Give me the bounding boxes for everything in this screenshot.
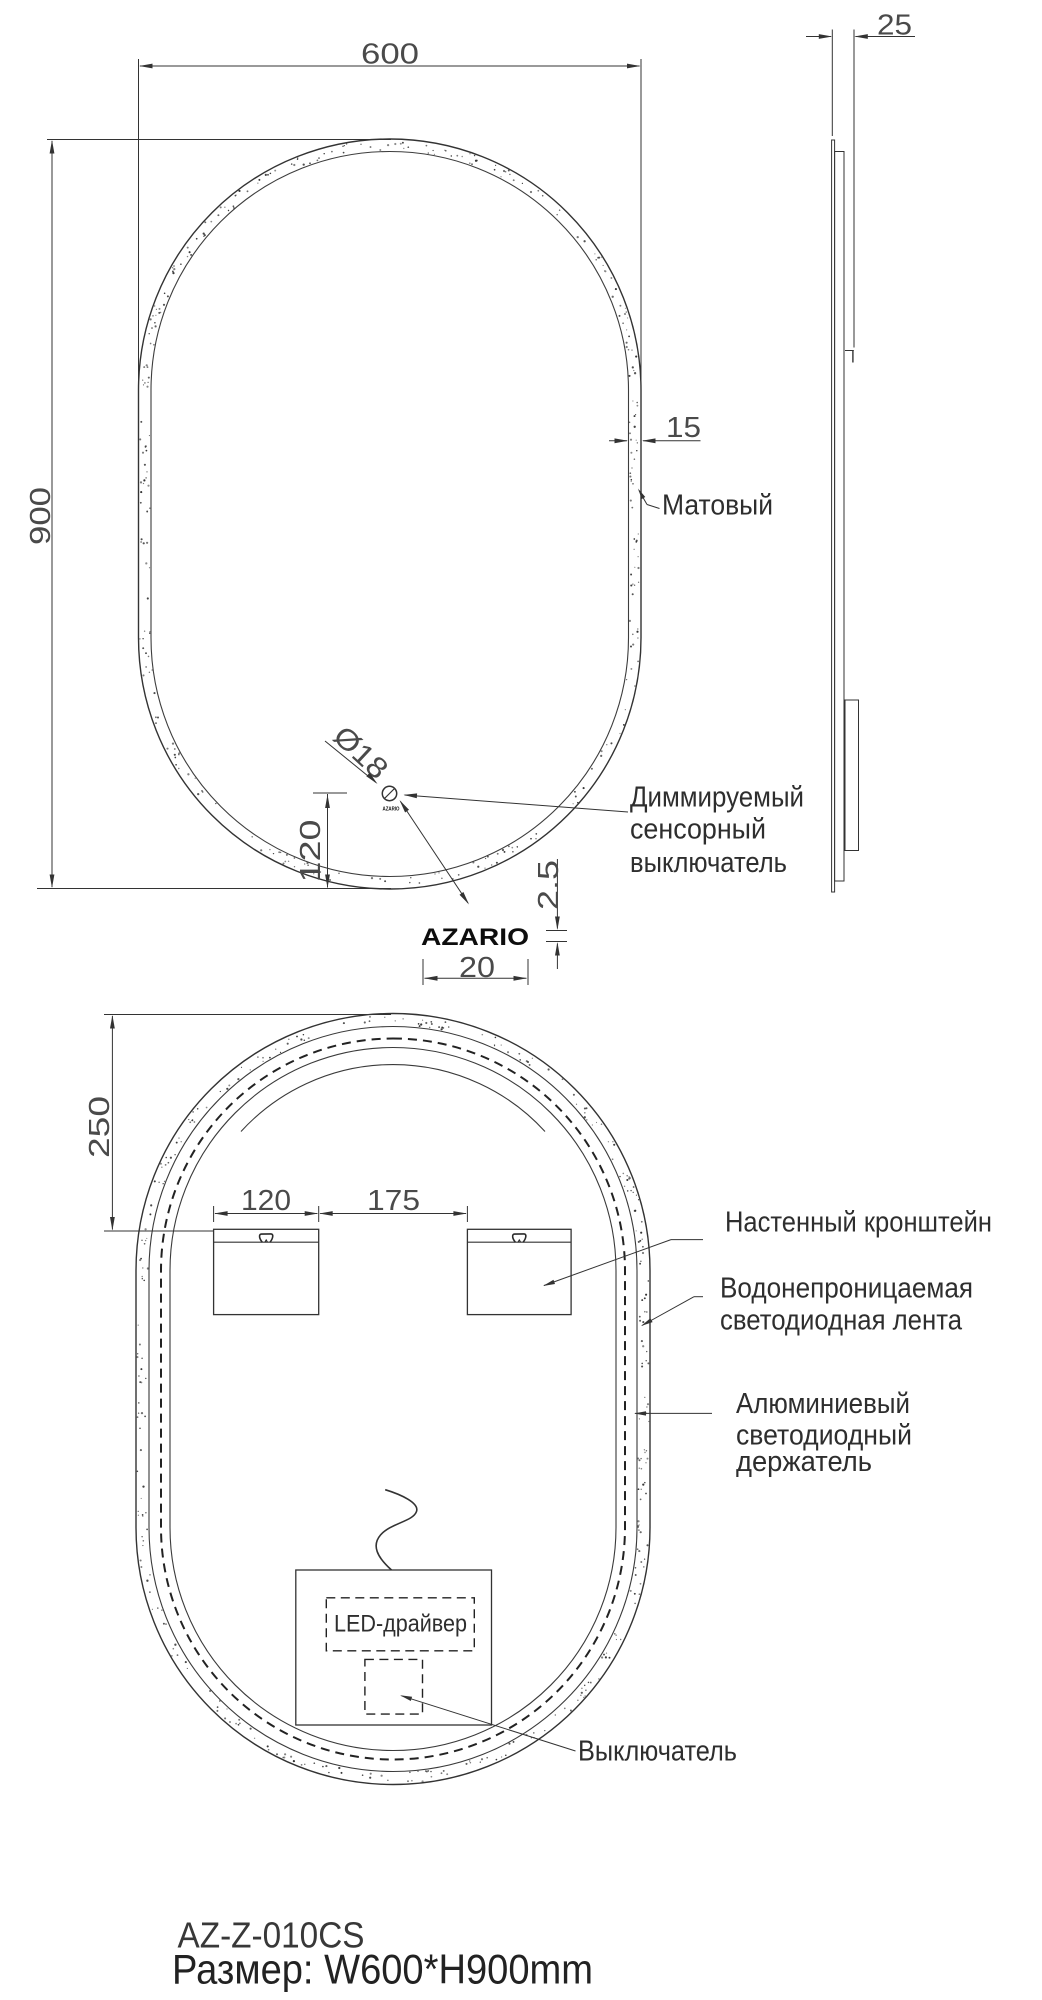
svg-text:2.5: 2.5 — [533, 860, 565, 910]
svg-text:20: 20 — [459, 952, 495, 984]
svg-text:15: 15 — [666, 412, 701, 444]
svg-text:25: 25 — [877, 10, 912, 42]
svg-text:175: 175 — [367, 1185, 420, 1217]
svg-text:Диммируемый: Диммируемый — [630, 782, 804, 814]
svg-text:Размер: W600*H900mm: Размер: W600*H900mm — [172, 1946, 593, 1993]
svg-text:держатель: держатель — [736, 1446, 872, 1478]
svg-text:Выключатель: Выключатель — [578, 1736, 737, 1768]
svg-text:Настенный кронштейн: Настенный кронштейн — [725, 1207, 992, 1239]
svg-text:Матовый: Матовый — [662, 490, 773, 522]
svg-text:AZARIO: AZARIO — [421, 924, 529, 951]
svg-text:LED-драйвер: LED-драйвер — [334, 1611, 467, 1638]
svg-text:сенсорный: сенсорный — [630, 814, 766, 846]
svg-text:900: 900 — [25, 487, 57, 545]
svg-text:120: 120 — [241, 1185, 291, 1217]
svg-text:120: 120 — [295, 820, 327, 883]
svg-text:Алюминиевый: Алюминиевый — [736, 1388, 910, 1420]
svg-text:Водонепроницаемая: Водонепроницаемая — [720, 1273, 973, 1305]
svg-text:600: 600 — [361, 39, 419, 71]
svg-text:выключатель: выключатель — [630, 847, 787, 879]
svg-text:250: 250 — [84, 1096, 116, 1158]
svg-text:AZARIO: AZARIO — [383, 807, 401, 813]
svg-text:светодиодная лента: светодиодная лента — [720, 1305, 962, 1337]
